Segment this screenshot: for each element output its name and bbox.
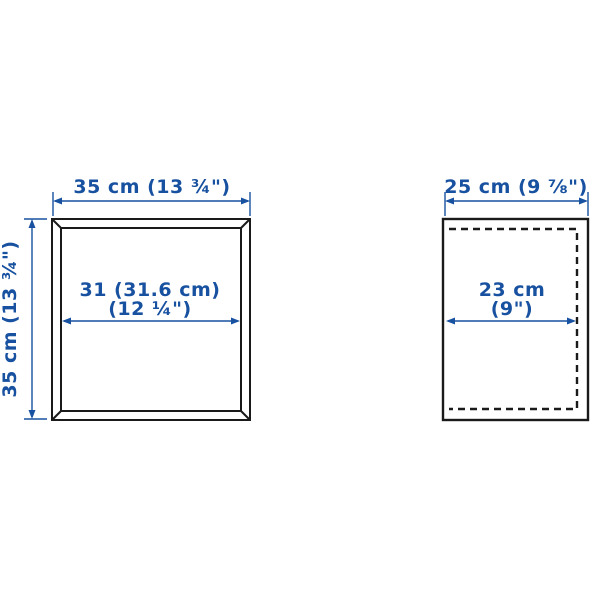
frame-miter-bottom-right <box>241 411 250 420</box>
side-inner-depth-label-line2: (9") <box>491 298 534 320</box>
arrow-left-icon <box>445 198 454 205</box>
arrow-right-icon <box>241 198 250 205</box>
frame-miter-top-right <box>241 219 250 228</box>
arrow-down-icon <box>29 410 36 419</box>
side-view-diagram: 25 cm (9 ⅞") 23 cm (9") <box>443 176 588 420</box>
frame-miter-bottom-left <box>52 411 61 420</box>
side-depth-label: 25 cm (9 ⅞") <box>444 176 588 198</box>
front-height-label: 35 cm (13 ¾") <box>0 240 21 397</box>
dimension-illustration: 35 cm (13 ¾") 35 cm (13 ¾") <box>0 0 600 600</box>
arrow-right-icon <box>579 198 588 205</box>
dimension-drawing-svg: 35 cm (13 ¾") 35 cm (13 ¾") <box>0 0 600 600</box>
front-view-diagram: 35 cm (13 ¾") 35 cm (13 ¾") <box>0 176 250 420</box>
arrow-up-icon <box>29 219 36 228</box>
arrow-right-icon <box>231 318 240 325</box>
front-width-label: 35 cm (13 ¾") <box>73 176 230 198</box>
arrow-left-icon <box>62 318 71 325</box>
arrow-left-icon <box>53 198 62 205</box>
frame-miter-top-left <box>52 219 61 228</box>
front-inner-width-label-line2: (12 ¼") <box>108 298 192 320</box>
